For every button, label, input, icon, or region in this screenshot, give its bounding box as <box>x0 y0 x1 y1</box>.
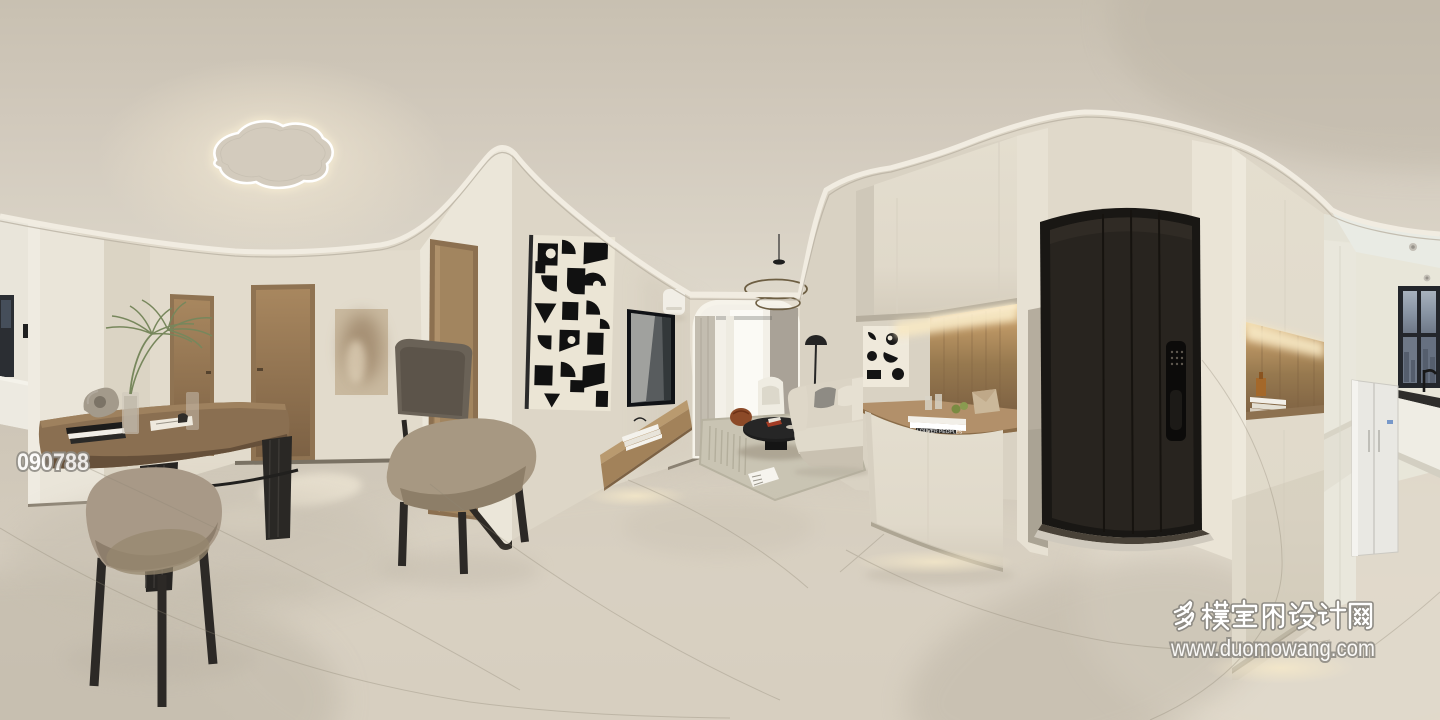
svg-text:090788: 090788 <box>17 449 89 476</box>
svg-text:www.duomowang.com: www.duomowang.com <box>1170 635 1375 661</box>
